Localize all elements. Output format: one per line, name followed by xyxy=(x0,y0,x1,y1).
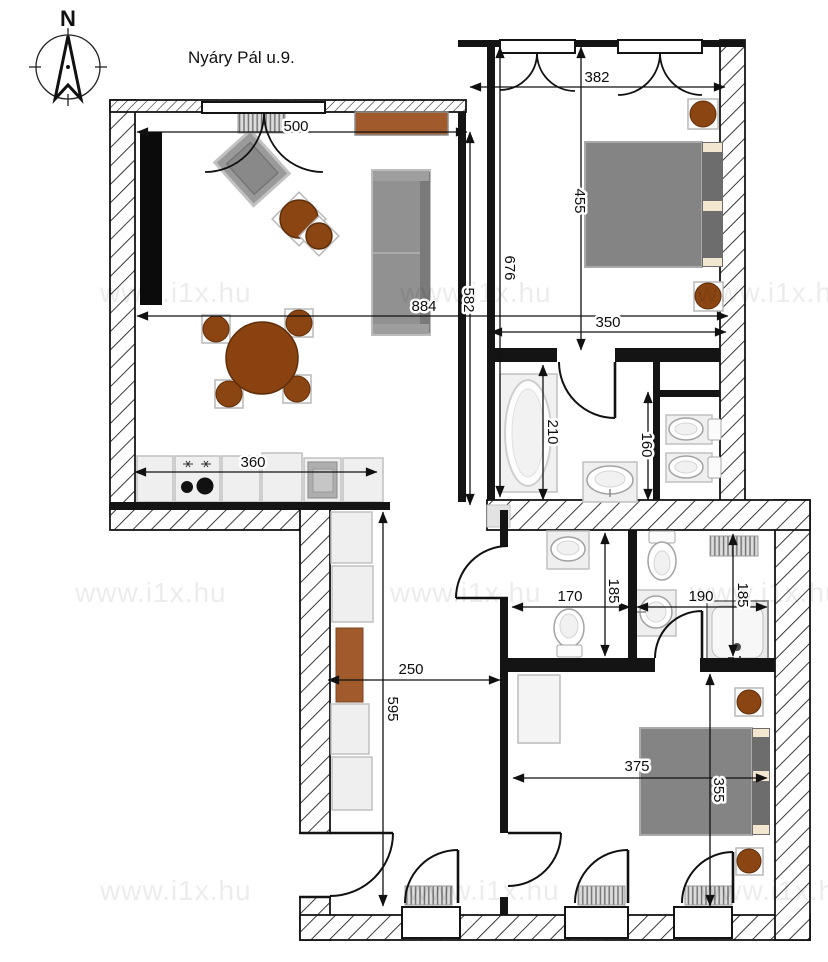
dim-bedroom1-depth: 455 xyxy=(571,188,588,213)
wall-right-top xyxy=(720,40,745,505)
watermark-text: www.i1x.hu xyxy=(407,875,560,906)
door-opening xyxy=(655,657,700,673)
window-bedroom1-a xyxy=(500,40,575,91)
toilet xyxy=(666,415,721,444)
radiator xyxy=(710,536,758,556)
floor-plan-drawing: 500 884 582 382 455 676 350 210 160 360 … xyxy=(0,0,828,962)
bed-double xyxy=(640,728,770,835)
dim-living-room-width: 500 xyxy=(283,118,308,135)
wall-bottom xyxy=(300,915,810,940)
toilet xyxy=(666,453,721,482)
north-label: N xyxy=(60,6,76,31)
dim-kitchen-counter: 360 xyxy=(240,454,265,471)
burner-icon xyxy=(181,481,193,493)
address-title: Nyáry Pál u.9. xyxy=(188,48,295,67)
compass-rose: N xyxy=(29,6,107,106)
pillow xyxy=(753,729,769,737)
nightstand xyxy=(736,848,763,875)
wall-bath-right xyxy=(653,355,660,500)
wall-living-bottom-inner xyxy=(110,502,390,510)
hall-cabinet xyxy=(331,512,372,563)
floor-plan-canvas: 500 884 582 382 455 676 350 210 160 360 … xyxy=(0,0,828,962)
dim-bathroom-height: 210 xyxy=(544,419,561,444)
hall-cabinet xyxy=(332,566,373,622)
balcony-door-sill xyxy=(402,907,460,938)
wall-right-bottom xyxy=(775,500,810,940)
wall-left-hall-upper xyxy=(300,505,330,833)
shower xyxy=(707,601,768,663)
watermark-text: www.i1x.hu xyxy=(99,875,252,906)
toilet xyxy=(648,531,676,580)
pillow xyxy=(703,143,722,152)
wall-bedroom1-left xyxy=(487,47,495,500)
radiator xyxy=(578,886,625,905)
pillow xyxy=(753,825,769,834)
pillow xyxy=(703,258,722,266)
watermark-text: www.i1x.hu xyxy=(74,577,227,608)
nightstand xyxy=(688,99,718,129)
wall-mid-band xyxy=(487,500,810,530)
watermark-text: www.i1x.hu xyxy=(696,277,828,308)
wall-bath-divider xyxy=(628,530,637,658)
dim-hallway-width: 250 xyxy=(398,661,423,678)
wall-bedroom2-top xyxy=(500,658,775,672)
watermark-text: www.i1x.hu xyxy=(389,577,542,608)
dim-bedroom2-width: 375 xyxy=(624,758,649,775)
bed-double xyxy=(585,142,723,267)
stove xyxy=(175,456,220,502)
watermark-text: www.i1x.hu xyxy=(689,577,828,608)
wc-room xyxy=(666,415,721,482)
bathroom-sink xyxy=(547,531,589,569)
dim-bedroom1-width: 350 xyxy=(595,314,620,331)
pillow xyxy=(703,201,722,211)
watermark-text: www.i1x.hu xyxy=(99,277,252,308)
dim-bedroom2-height: 355 xyxy=(710,777,727,802)
door-opening xyxy=(557,347,615,363)
burner-icon xyxy=(197,478,214,495)
hall-cabinet-brown xyxy=(336,628,363,702)
balcony-door-sill xyxy=(674,907,732,938)
dim-bathroom2-width: 170 xyxy=(557,588,582,605)
dim-bedroom1-window-span: 382 xyxy=(584,69,609,86)
hallway xyxy=(331,505,510,905)
watermark-text: www.i1x.hu xyxy=(399,277,552,308)
door-bathroom-main xyxy=(559,362,615,418)
wardrobe xyxy=(518,675,560,743)
wall-wc-top xyxy=(653,390,720,397)
bathroom-sink xyxy=(583,462,637,502)
dim-wc-height: 160 xyxy=(638,432,655,457)
watermark-text: www.i1x.hu xyxy=(699,875,828,906)
nightstand xyxy=(735,688,763,716)
balcony-door-sill xyxy=(565,907,628,938)
dim-hallway-height: 595 xyxy=(384,696,401,721)
hall-cabinet xyxy=(332,757,372,810)
dim-bathroom2-height: 185 xyxy=(605,578,622,603)
entry-opening xyxy=(299,833,331,897)
dining-table xyxy=(202,309,313,408)
hall-cabinet xyxy=(331,704,369,754)
bathroom-sink xyxy=(636,590,676,636)
pillow xyxy=(753,771,769,781)
toilet xyxy=(554,609,584,657)
